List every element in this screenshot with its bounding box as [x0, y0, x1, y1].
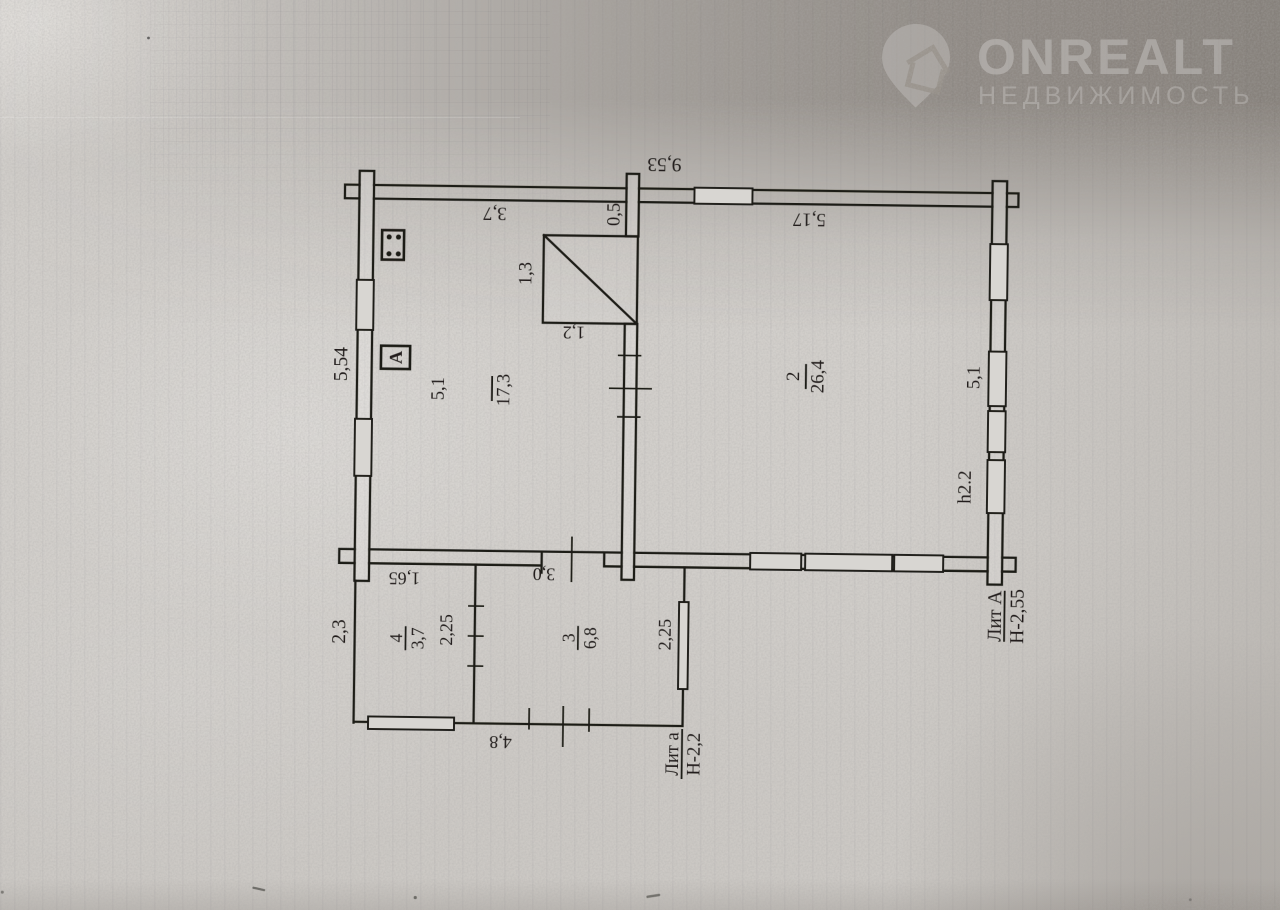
svg-text:0,5: 0,5	[604, 203, 624, 226]
svg-text:6,8: 6,8	[580, 627, 600, 649]
svg-text:2,25: 2,25	[436, 614, 456, 646]
svg-text:h2.2: h2.2	[955, 470, 976, 504]
svg-text:3: 3	[558, 633, 578, 642]
svg-text:Лит А: Лит А	[985, 590, 1007, 641]
svg-text:1,65: 1,65	[389, 568, 421, 588]
svg-text:4: 4	[386, 633, 406, 642]
svg-text:Лит а: Лит а	[663, 732, 684, 776]
svg-text:9,53: 9,53	[647, 153, 681, 174]
svg-text:4,8: 4,8	[489, 732, 512, 752]
svg-text:2,25: 2,25	[654, 619, 674, 651]
svg-text:1,3: 1,3	[516, 262, 536, 285]
svg-text:1,2: 1,2	[563, 322, 586, 342]
svg-text:А: А	[386, 351, 406, 364]
svg-text:5,17: 5,17	[793, 208, 827, 229]
svg-text:Н-2,2: Н-2,2	[685, 733, 706, 776]
svg-text:Н-2,55: Н-2,55	[1007, 589, 1029, 644]
svg-text:5,1: 5,1	[964, 366, 984, 389]
svg-text:5,54: 5,54	[331, 347, 352, 382]
svg-text:3,7: 3,7	[483, 202, 507, 223]
svg-text:3,0: 3,0	[533, 564, 556, 584]
svg-text:2,3: 2,3	[329, 619, 350, 644]
svg-text:5,1: 5,1	[429, 377, 449, 400]
svg-text:3,7: 3,7	[407, 627, 427, 649]
svg-text:26,4: 26,4	[807, 359, 828, 393]
svg-text:17,3: 17,3	[494, 374, 514, 407]
svg-text:2: 2	[783, 371, 804, 381]
